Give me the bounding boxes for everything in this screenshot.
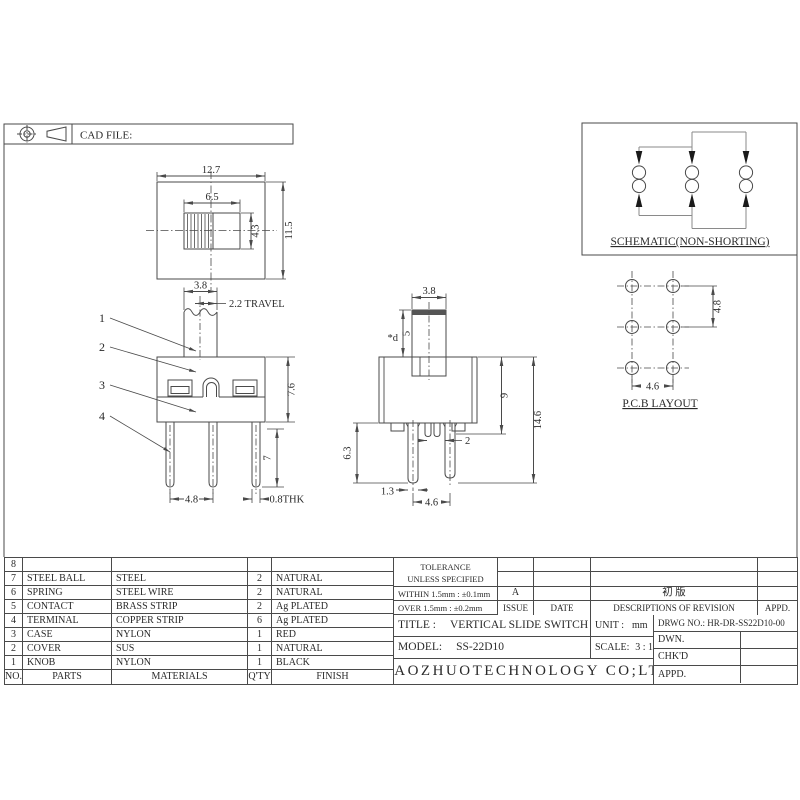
parts-row-part: CASE	[23, 628, 112, 642]
dim-frontview-terminal-length: 7	[263, 455, 274, 460]
revision-date-value	[534, 587, 591, 601]
drawing-title: TITLE : VERTICAL SLIDE SWITCH	[394, 615, 591, 637]
dim-sideview-knob-width: 3.8	[422, 286, 435, 297]
revision-cell-empty	[498, 572, 534, 586]
parts-row-finish: NATURAL	[272, 642, 394, 656]
dim-pcb-horizontal-pitch: 4.6	[646, 382, 659, 393]
parts-row-no: 1	[5, 656, 23, 670]
drawing-sheet: CAD FILE: 12.7 6.5 4.3 11.5 3.8 2.2 TRAV…	[0, 0, 800, 800]
revision-header-issue: ISSUE	[498, 601, 534, 615]
parts-row-part	[23, 558, 112, 572]
dim-pcb-vertical-pitch: 4.8	[713, 300, 724, 313]
revision-header-desc: DESCRIPTIONS OF REVISION	[591, 601, 758, 615]
unit-label: UNIT :	[595, 621, 624, 631]
parts-row-no: 3	[5, 628, 23, 642]
parts-row-finish: BLACK	[272, 656, 394, 670]
revision-header-date: DATE	[534, 601, 591, 615]
tolerance-over: OVER 1.5mm : ±0.2mm	[394, 600, 497, 614]
parts-row-qty: 1	[248, 656, 272, 670]
chkd-label: CHK'D	[654, 649, 741, 666]
dim-frontview-thickness: 0.8THK	[270, 495, 305, 506]
parts-row-qty	[248, 558, 272, 572]
parts-row-finish	[272, 558, 394, 572]
parts-row-part: STEEL BALL	[23, 572, 112, 586]
model-value: SS-22D10	[456, 642, 504, 654]
chkd-value	[741, 649, 797, 666]
dim-sideview-body-height: 9	[500, 393, 511, 398]
appd-value	[741, 666, 797, 683]
dim-frontview-travel: 2.2 TRAVEL	[229, 299, 285, 310]
revision-header-appd: APPD.	[758, 601, 797, 615]
revision-table: A 初 版 ISSUE DATE DESCRIPTIONS OF REVISIO…	[498, 558, 797, 615]
dwn-label: DWN.	[654, 632, 741, 649]
scale-cell: SCALE: 3 : 1	[591, 637, 653, 659]
parts-row-part: SPRING	[23, 586, 112, 600]
title-value: VERTICAL SLIDE SWITCH	[450, 620, 588, 632]
parts-header-finish: FINISH	[272, 670, 394, 684]
parts-row-material: STEEL WIRE	[112, 586, 248, 600]
parts-row-no: 4	[5, 614, 23, 628]
parts-row-finish: Ag PLATED	[272, 614, 394, 628]
pcb-layout-caption: P.C.B LAYOUT	[622, 398, 697, 410]
scale-label: SCALE:	[595, 643, 629, 653]
unit-value: mm	[632, 621, 648, 631]
revision-cell-empty	[534, 558, 591, 572]
dim-sideview-total-height: 14.6	[533, 411, 544, 429]
parts-header-parts: PARTS	[23, 670, 112, 684]
dim-sideview-knob-height: 5	[402, 331, 413, 336]
pcb-layout	[617, 271, 717, 390]
revision-cell-empty	[591, 558, 758, 572]
parts-row-material: STEEL	[112, 572, 248, 586]
parts-row-part: COVER	[23, 642, 112, 656]
parts-table: 8 7 STEEL BALL STEEL 2 NATURAL 6 SPRING …	[5, 558, 394, 684]
revision-description-value: 初 版	[591, 587, 758, 601]
parts-row-qty: 2	[248, 572, 272, 586]
parts-row-qty: 2	[248, 600, 272, 614]
parts-row-qty: 1	[248, 642, 272, 656]
revision-cell-empty	[758, 558, 797, 572]
revision-appd-value	[758, 587, 797, 601]
parts-row-material: COPPER STRIP	[112, 614, 248, 628]
dim-topview-height: 11.5	[284, 222, 295, 240]
title-block-table: 8 7 STEEL BALL STEEL 2 NATURAL 6 SPRING …	[4, 557, 798, 685]
sheet-border	[4, 123, 797, 557]
parts-row-material	[112, 558, 248, 572]
dim-topview-knob-width: 6.5	[205, 192, 218, 203]
parts-row-part: CONTACT	[23, 600, 112, 614]
projection-symbol-icon	[17, 125, 66, 143]
tolerance-block: TOLERANCE UNLESS SPECIFIED WITHIN 1.5mm …	[394, 558, 498, 615]
callout-3-case: 3	[99, 378, 105, 392]
parts-header-no: NO.	[5, 670, 23, 684]
revision-cell-empty	[534, 572, 591, 586]
parts-row-material: NYLON	[112, 656, 248, 670]
parts-row-no: 5	[5, 600, 23, 614]
cad-file-label: CAD FILE:	[80, 130, 132, 142]
dim-frontview-body-height: 7.6	[287, 383, 298, 396]
dim-frontview-pitch: 4.8	[185, 495, 198, 506]
parts-header-qty: Q'TY	[248, 670, 272, 684]
schematic-caption: SCHEMATIC(NON-SHORTING)	[610, 236, 769, 248]
dwn-value	[741, 632, 797, 649]
parts-row-finish: NATURAL	[272, 572, 394, 586]
unit-cell: UNIT : mm	[591, 615, 653, 637]
parts-row-qty: 6	[248, 614, 272, 628]
title-block: TITLE : VERTICAL SLIDE SWITCH UNIT : mm …	[394, 615, 797, 684]
dim-frontview-knob-width: 3.8	[194, 281, 207, 292]
callout-1-knob: 1	[99, 311, 105, 325]
dim-sideview-stub-gap: 2	[465, 436, 470, 447]
parts-header-materials: MATERIALS	[112, 670, 248, 684]
parts-row-finish: NATURAL	[272, 586, 394, 600]
dim-sideview-leg-width: 1.3	[381, 487, 394, 498]
dim-sideview-pitch: 4.6	[425, 498, 438, 509]
dim-sideview-leg-length: 6.3	[343, 446, 354, 459]
revision-cell-empty	[758, 572, 797, 586]
parts-row-no: 2	[5, 642, 23, 656]
callout-2-cover: 2	[99, 340, 105, 354]
dim-sideview-knob-dia: *d	[388, 333, 399, 344]
parts-row-material: SUS	[112, 642, 248, 656]
parts-row-finish: Ag PLATED	[272, 600, 394, 614]
dim-topview-width: 12.7	[202, 165, 220, 176]
parts-row-part: TERMINAL	[23, 614, 112, 628]
parts-row-material: BRASS STRIP	[112, 600, 248, 614]
tolerance-title: TOLERANCE	[394, 558, 497, 572]
revision-issue-value: A	[498, 587, 534, 601]
revision-cell-empty	[498, 558, 534, 572]
model-cell: MODEL: SS-22D10	[394, 637, 591, 659]
scale-value: 3 : 1	[635, 643, 653, 653]
dim-topview-knob-height: 4.3	[251, 224, 262, 237]
parts-row-material: NYLON	[112, 628, 248, 642]
title-label: TITLE :	[398, 620, 436, 632]
callout-4-terminal: 4	[99, 409, 105, 423]
parts-row-no: 6	[5, 586, 23, 600]
drwg-no-cell: DRWG NO.: HR-DR-SS22D10-00	[654, 615, 797, 632]
model-label: MODEL:	[398, 642, 442, 654]
tolerance-within: WITHIN 1.5mm : ±0.1mm	[394, 586, 497, 600]
parts-row-finish: RED	[272, 628, 394, 642]
tolerance-subtitle: UNLESS SPECIFIED	[394, 572, 497, 586]
company-name: XIAOZHUOTECHNOLOGY CO;LTD	[394, 659, 653, 684]
parts-row-part: KNOB	[23, 656, 112, 670]
parts-row-no: 8	[5, 558, 23, 572]
callout-leaders	[110, 318, 196, 452]
parts-row-no: 7	[5, 572, 23, 586]
parts-row-qty: 2	[248, 586, 272, 600]
parts-row-qty: 1	[248, 628, 272, 642]
side-view	[353, 294, 537, 507]
revision-cell-empty	[591, 572, 758, 586]
cad-file-bar	[4, 124, 293, 144]
top-view	[146, 171, 286, 290]
appd-label: APPD.	[654, 666, 741, 683]
front-view	[110, 288, 295, 504]
